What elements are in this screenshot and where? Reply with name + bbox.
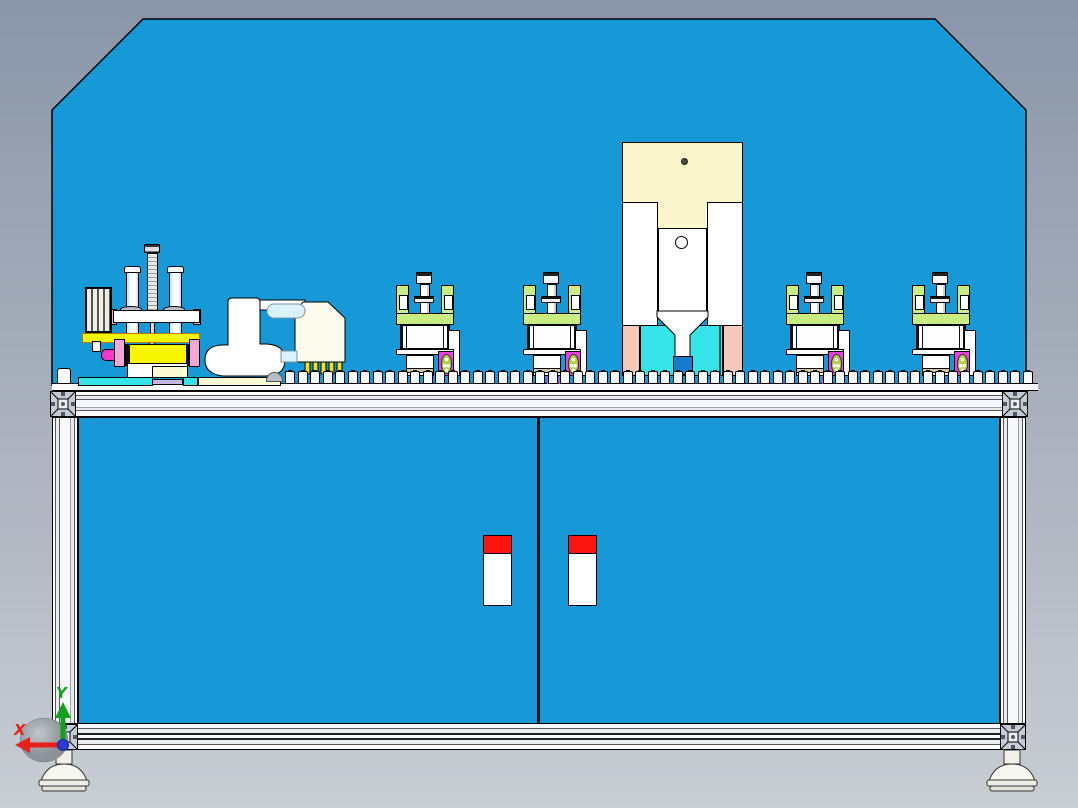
chain-block [360, 371, 370, 384]
origin-dot [58, 740, 69, 751]
cylinder-block [85, 287, 112, 333]
chain-block [873, 371, 883, 384]
chain-block [723, 371, 733, 384]
roller-bracket [189, 339, 200, 367]
chain-block [935, 371, 945, 384]
adjuster-cap [932, 272, 948, 284]
chain-block [785, 371, 795, 384]
guide-post-cap [167, 266, 184, 273]
chain-block [298, 371, 308, 384]
chain-block [523, 371, 533, 384]
chain-block [685, 371, 695, 384]
roller-bracket [114, 339, 125, 367]
chain-block [698, 371, 708, 384]
extrusion-cross-section [1000, 724, 1026, 750]
guide-post-cap [124, 266, 141, 273]
chain-block [285, 371, 295, 384]
press-head-hole [681, 158, 688, 165]
chain-block [948, 371, 958, 384]
chain-block [973, 371, 983, 384]
chain-block [598, 371, 608, 384]
chain-block [435, 371, 445, 384]
adjust-screw-knob [144, 244, 160, 253]
bracket-bar [396, 313, 454, 325]
press-station-4 [912, 272, 976, 386]
chain-block [910, 371, 920, 384]
cylinder-body [790, 325, 840, 349]
chain-block [960, 371, 970, 384]
chain-block [1010, 371, 1020, 384]
chain-block [623, 371, 633, 384]
chain-block [460, 371, 470, 384]
chain-block [585, 371, 595, 384]
chain-block [485, 371, 495, 384]
adjuster-cap [543, 272, 559, 284]
base-block-salmon [622, 325, 640, 376]
chain-block [885, 371, 895, 384]
chain-block [673, 371, 683, 384]
extrusion-cross-section [50, 391, 76, 417]
chain-block [448, 371, 458, 384]
press-column-right [707, 202, 743, 326]
conveyor-chain [0, 371, 1078, 385]
coordinate-triad: X Y [8, 676, 108, 786]
press-head [622, 142, 743, 204]
top-plate [113, 310, 200, 323]
rod-collar [804, 296, 824, 303]
frame-leg-right [1000, 417, 1026, 724]
chain-block [498, 371, 508, 384]
chain-block [548, 371, 558, 384]
door-handle-left [483, 535, 512, 606]
chain-block [423, 371, 433, 384]
bracket-bar [786, 313, 844, 325]
rod-collar [930, 296, 950, 303]
sight-window [281, 351, 297, 362]
chain-block [410, 371, 420, 384]
bracket-bar [523, 313, 581, 325]
press-column-left [622, 202, 658, 326]
slider-hole [675, 236, 688, 249]
adjuster-cap [416, 272, 432, 284]
door-handle-right [568, 535, 597, 606]
chain-block [810, 371, 820, 384]
rod-collar [541, 296, 561, 303]
chain-block [985, 371, 995, 384]
chain-block [835, 371, 845, 384]
y-axis-label: Y [56, 684, 69, 702]
chain-block [510, 371, 520, 384]
cad-viewport[interactable]: X Y [0, 0, 1078, 808]
chain-block [385, 371, 395, 384]
chain-block [335, 371, 345, 384]
bracket-bar [912, 313, 970, 325]
chain-block [860, 371, 870, 384]
chain-block [798, 371, 808, 384]
chain-block [610, 371, 620, 384]
chain-block [898, 371, 908, 384]
press-funnel [656, 310, 709, 358]
leveling-foot-right [984, 750, 1040, 792]
chain-block [310, 371, 320, 384]
cylinder-body [527, 325, 577, 349]
extrusion-cross-section [1002, 391, 1028, 417]
chain-block [648, 371, 658, 384]
chain-block [848, 371, 858, 384]
press-station-3 [786, 272, 850, 386]
chain-block [760, 371, 770, 384]
sight-window [267, 304, 305, 318]
guide-post [126, 272, 139, 338]
chain-block [710, 371, 720, 384]
adjust-screw [147, 253, 158, 312]
chain-block [773, 371, 783, 384]
chain-block [748, 371, 758, 384]
chain-block [1023, 371, 1033, 384]
base-divider [719, 325, 721, 376]
chain-block [923, 371, 933, 384]
chain-block [560, 371, 570, 384]
chain-block [573, 371, 583, 384]
press-mid-cream [658, 203, 707, 231]
press-station-1 [396, 272, 460, 386]
cam-feeder-assembly [203, 296, 353, 380]
chain-block [398, 371, 408, 384]
chain-block [348, 371, 358, 384]
cylinder-body [916, 325, 966, 349]
chain-block [535, 371, 545, 384]
door-seam [537, 417, 540, 724]
press-station-2 [523, 272, 587, 386]
x-axis-label: X [13, 721, 27, 739]
chain-block [323, 371, 333, 384]
chain-block [373, 371, 383, 384]
chain-block [473, 371, 483, 384]
chain-block [735, 371, 745, 384]
chain-block [635, 371, 645, 384]
cylinder-body [400, 325, 450, 349]
base-block-salmon [723, 325, 743, 376]
chain-block [998, 371, 1008, 384]
center-press-structure [620, 140, 745, 380]
table-top-rail [50, 391, 1028, 417]
frame-bottom-rail [52, 723, 1026, 750]
chain-block [660, 371, 670, 384]
adjuster-cap [806, 272, 822, 284]
support-stem [92, 341, 101, 352]
chain-block [823, 371, 833, 384]
rod-collar [414, 296, 434, 303]
guide-post [169, 272, 182, 338]
